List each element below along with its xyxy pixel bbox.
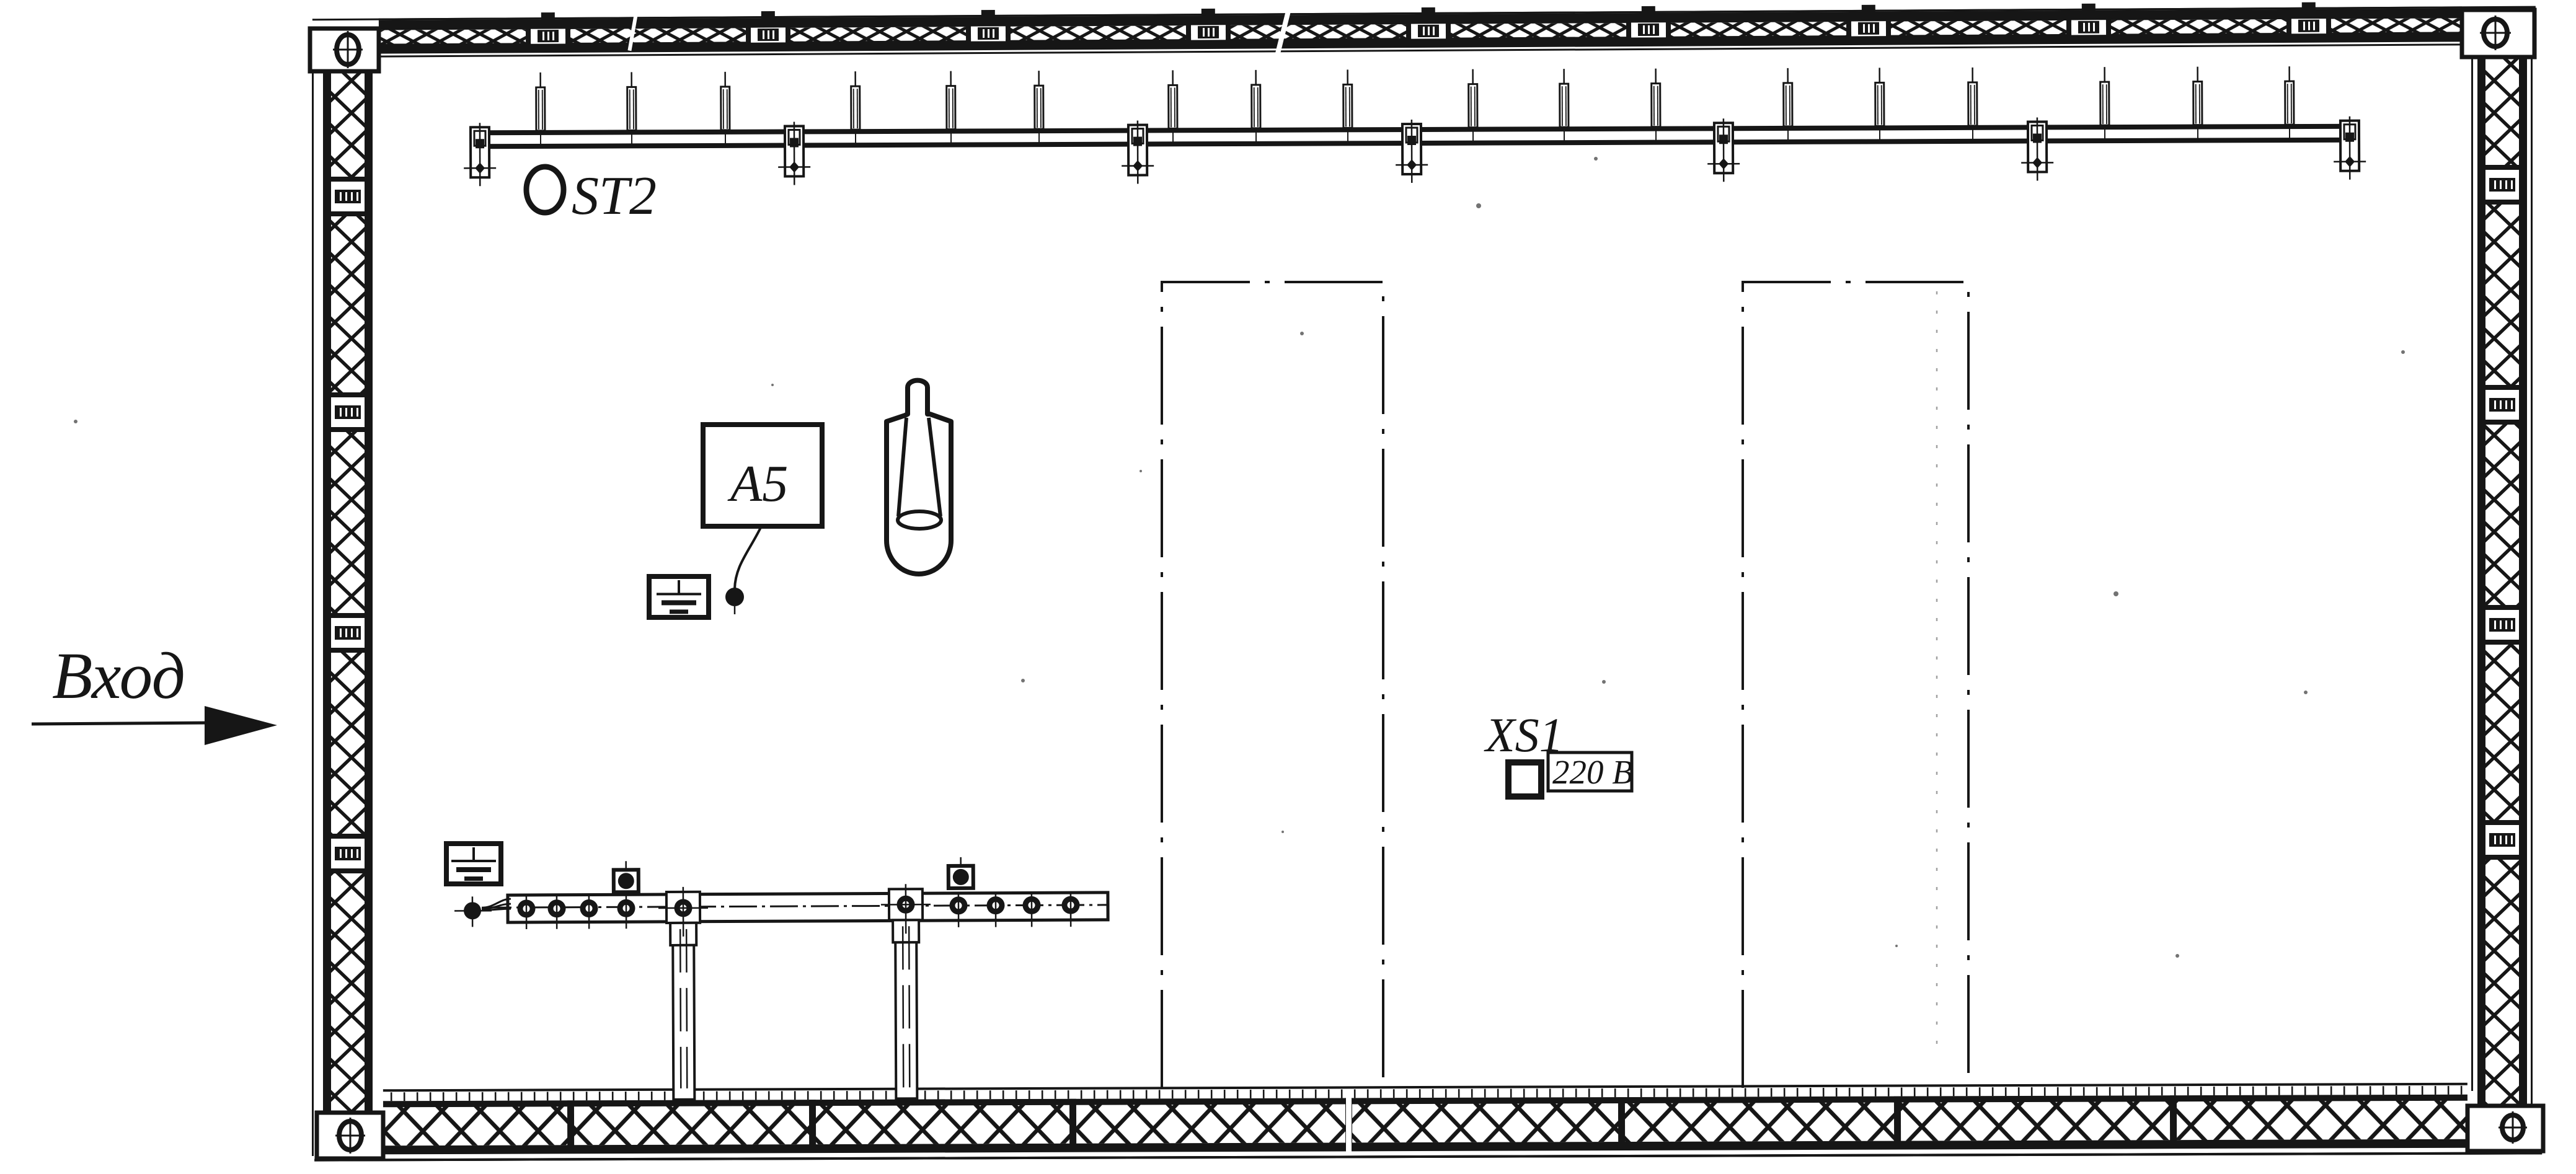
svg-text:220 В: 220 В — [1552, 753, 1633, 791]
svg-text:A5: A5 — [727, 455, 788, 513]
svg-text:Вход: Вход — [52, 640, 185, 713]
svg-text:ST2: ST2 — [572, 166, 657, 226]
